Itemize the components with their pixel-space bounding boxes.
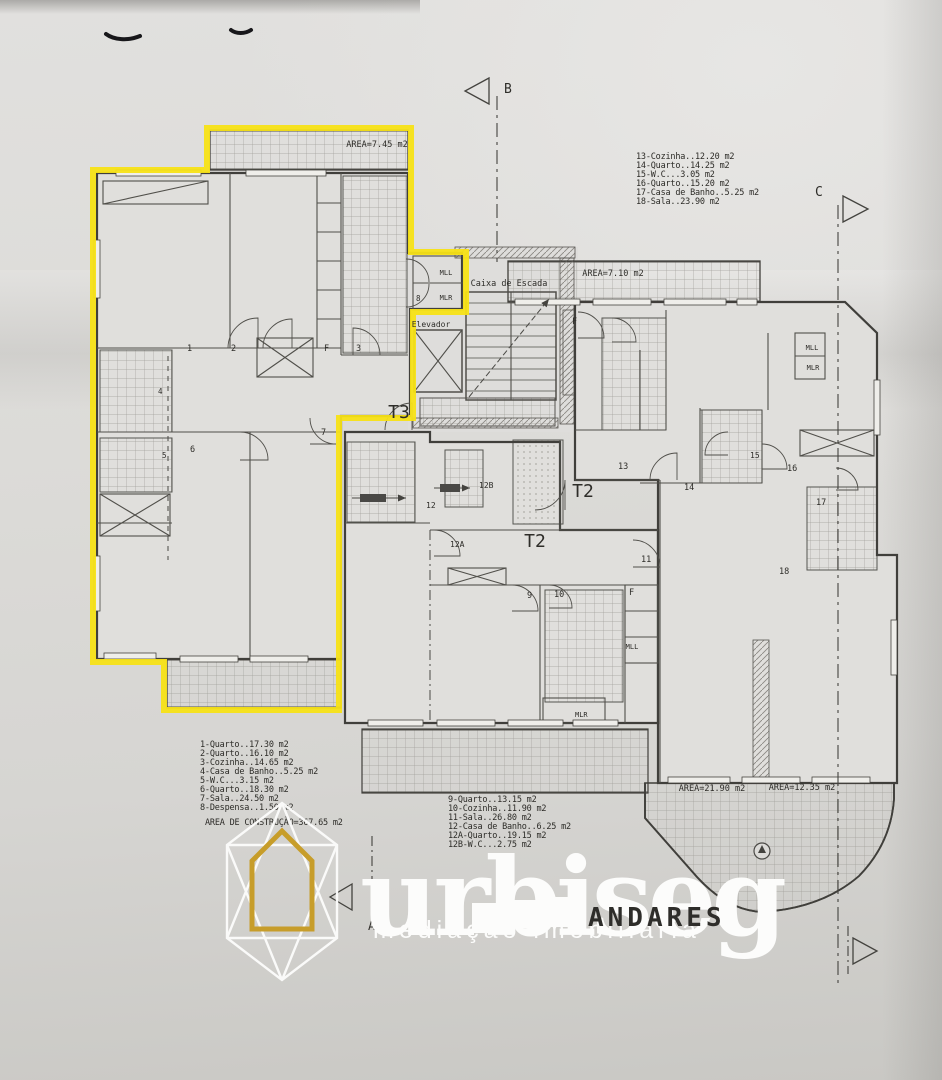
- legend-t3: 1-Quarto..17.30 m22-Quarto..16.10 m23-Co…: [200, 741, 318, 813]
- room-label-15: 15: [750, 451, 760, 460]
- room-label-8: 8: [416, 294, 421, 303]
- unit-label-t3: T3: [388, 402, 410, 423]
- room-label-10: 10: [554, 590, 564, 600]
- plan-title-andares: ANDARES: [588, 903, 726, 933]
- caixa-de-escada-label: Caixa de Escada: [471, 279, 548, 289]
- room-label-14: 14: [684, 483, 694, 493]
- room-label-9: 9: [527, 591, 532, 601]
- elevador-label: Elevador: [412, 320, 451, 329]
- pen-marks: [106, 30, 251, 39]
- unit-label-t2-bottom: T2: [524, 531, 546, 552]
- room-label-2: 2: [231, 344, 236, 354]
- section-marker-c-triangle: [843, 196, 868, 222]
- legend-line: 8-Despensa..1.50 m2: [200, 804, 318, 813]
- legend-line: 18-Sala..23.90 m2: [636, 198, 759, 207]
- room-label-16: 16: [787, 464, 797, 474]
- closet-label-mlr-core: MLR: [440, 294, 453, 302]
- room-label-12: 12: [426, 501, 436, 510]
- room-label-f-t3: F: [324, 344, 329, 354]
- room-label-f-right: F: [572, 317, 577, 327]
- room-label-17: 17: [816, 498, 826, 508]
- section-marker-br-triangle: [853, 938, 877, 964]
- section-marker-a-label: A: [368, 919, 376, 933]
- room-label-12a: 12A: [450, 540, 465, 549]
- legend-t2-bottom: 9-Quarto..13.15 m210-Cozinha..11.90 m211…: [448, 796, 571, 850]
- photographed-floorplan-page: AREA=7.45 m2AREA=7.10 m2AREA=21.90 m2ARE…: [0, 0, 942, 1080]
- closet-label-mll-bottom: MLL: [626, 643, 639, 651]
- area-label-2190: AREA=21.90 m2: [679, 784, 746, 794]
- area-label-1235: AREA=12.35 m2: [769, 783, 836, 793]
- closet-label-mlr-right: MLR: [807, 364, 820, 372]
- legend-t2-right: 13-Cozinha..12.20 m214-Quarto..14.25 m21…: [636, 153, 759, 207]
- room-label-6: 6: [190, 445, 195, 455]
- room-label-12b: 12B: [479, 481, 494, 490]
- room-label-f-bottom: F: [629, 588, 634, 598]
- closet-label-mll-core: MLL: [440, 269, 453, 277]
- area-label-745: AREA=7.45 m2: [346, 140, 407, 150]
- legend-t3-total: AREA DE CONSTRUÇÃO=367.65 m2: [205, 818, 343, 828]
- closet-label-mlr-bottom: MLR: [575, 711, 588, 719]
- section-marker-b-label: B: [504, 82, 512, 97]
- room-label-18: 18: [779, 567, 789, 577]
- unit-label-t2-right: T2: [572, 481, 594, 502]
- section-marker-a-triangle: [330, 884, 352, 910]
- floorplan-drawing: AREA=7.45 m2AREA=7.10 m2AREA=21.90 m2ARE…: [0, 0, 942, 1080]
- room-label-7: 7: [321, 428, 326, 438]
- closet-label-mll-right: MLL: [806, 344, 819, 352]
- room-label-11: 11: [641, 555, 651, 565]
- section-marker-c-label: C: [815, 185, 823, 200]
- room-label-4: 4: [158, 387, 163, 396]
- area-label-710: AREA=7.10 m2: [582, 269, 643, 279]
- room-label-3: 3: [356, 344, 361, 354]
- room-label-5: 5: [162, 451, 167, 460]
- section-marker-b-triangle: [465, 78, 489, 104]
- room-label-1: 1: [187, 344, 192, 354]
- legend-line: 12B-W.C...2.75 m2: [448, 841, 571, 850]
- room-label-13: 13: [618, 462, 628, 472]
